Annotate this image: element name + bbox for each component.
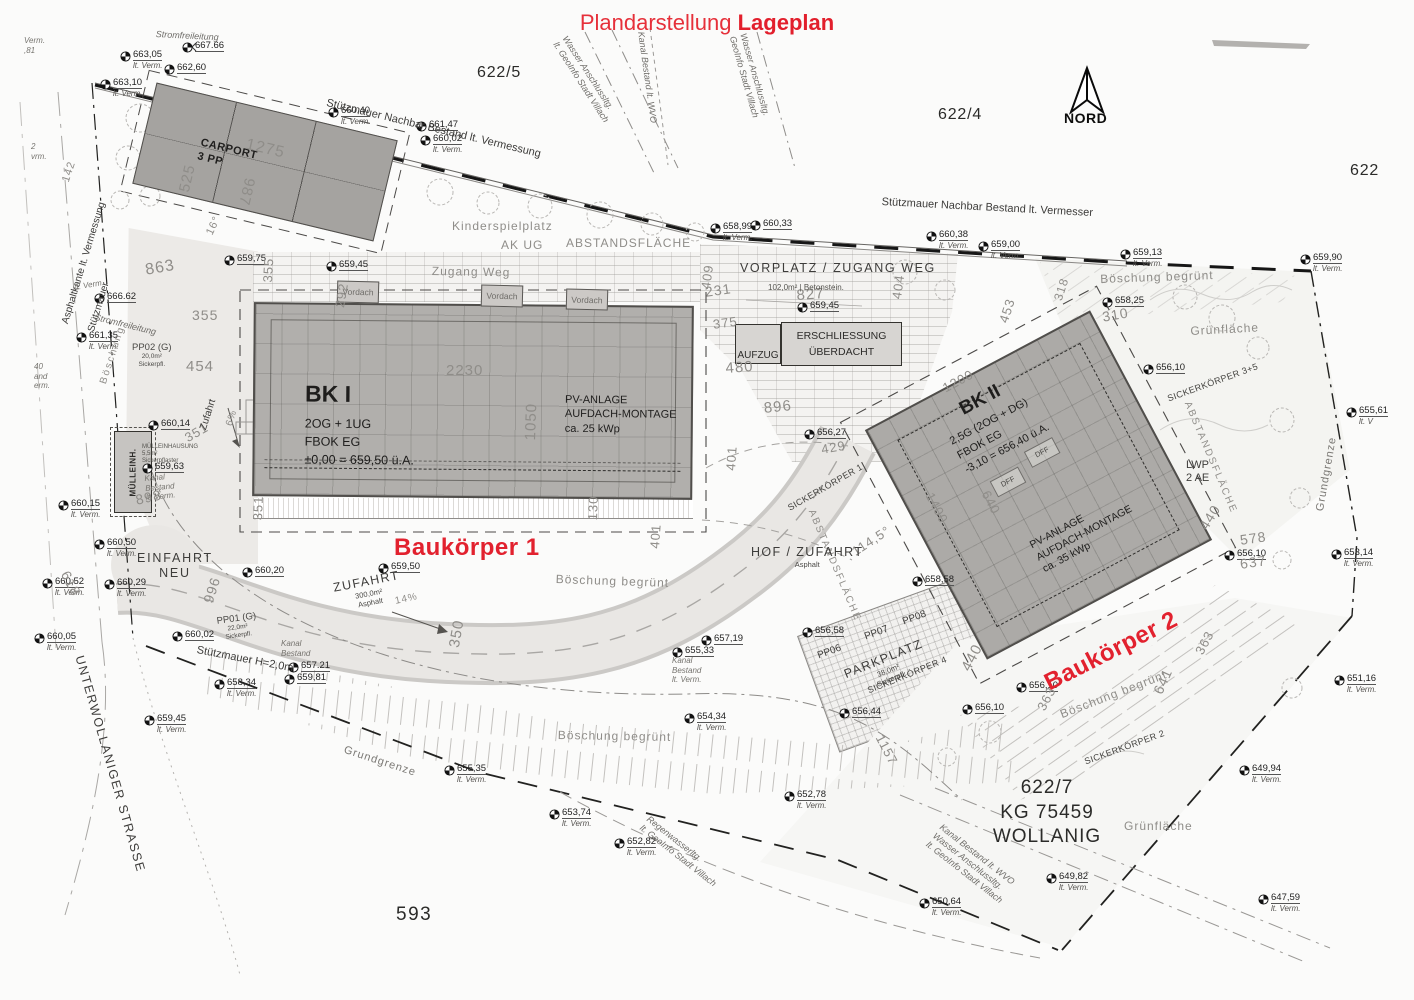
survey-source: lt. Verm.: [1252, 775, 1281, 785]
survey-marker-icon: [224, 255, 235, 266]
bk1-elevation: ±0,00 = 659,50 ü.A.: [304, 451, 414, 470]
survey-elevation: 653,14: [1344, 548, 1373, 559]
survey-marker-icon: [284, 674, 295, 685]
map-note-line: erm.: [34, 381, 50, 391]
map-note: HOF / ZUFAHRTAsphalt: [751, 545, 863, 569]
map-note: KanalBestandlt. Verm.: [672, 656, 701, 685]
survey-source: lt. Verm.: [627, 848, 656, 858]
parcel-622-5: 622/5: [477, 64, 521, 82]
survey-elevation: 660,20: [255, 566, 284, 577]
survey-source: lt. Verm.: [133, 61, 162, 71]
survey-marker-icon: [912, 576, 923, 587]
map-note: Grünfläche: [1124, 819, 1193, 833]
bk2-dff-1: DFF: [990, 467, 1027, 498]
parcel-kg: KG 75459: [972, 801, 1122, 826]
survey-marker-icon: [839, 708, 850, 719]
survey-marker-icon: [1258, 894, 1269, 905]
parcel-622-7: 622/7: [972, 776, 1122, 801]
vordach-box-3: Vordach: [566, 288, 609, 310]
survey-source: lt. Verm.: [1271, 904, 1300, 914]
dimension-label: 355: [192, 307, 218, 323]
survey-marker-icon: [919, 898, 930, 909]
survey-marker-icon: [750, 220, 761, 231]
map-note: PP01 (G)22,0m²Sickerpfl.: [216, 610, 259, 642]
survey-elevation: 660,50: [107, 538, 136, 549]
muelleinhausung-label: MÜLLEINH.: [129, 448, 138, 496]
survey-elevation: 666.62: [107, 292, 136, 303]
map-note-line: Zugang Weg: [432, 264, 511, 280]
survey-marker-icon: [1346, 407, 1357, 418]
map-note-line: Verm.: [24, 36, 45, 46]
survey-marker-icon: [710, 223, 721, 234]
map-note-line: Kinderspielplatz: [452, 219, 553, 233]
survey-elevation: 651,16: [1347, 674, 1376, 685]
survey-point: 654,34lt. Verm.: [684, 712, 726, 733]
survey-marker-icon: [144, 715, 155, 726]
parcel-622-7-block: 622/7 KG 75459 WOLLANIG: [972, 776, 1122, 850]
survey-elevation: 656,10: [1156, 363, 1185, 374]
survey-source: lt. Verm.: [107, 549, 136, 559]
map-note: Zugang Weg: [432, 264, 511, 280]
bk2-pv-note: PV-ANLAGE AUFDACH-MONTAGE ca. 35 kWp: [1028, 490, 1141, 576]
survey-elevation: 660,38: [939, 230, 968, 241]
survey-elevation: 659,45: [339, 260, 368, 271]
survey-point: 650,64lt. Verm.: [919, 897, 961, 918]
survey-elevation: 667.66: [195, 41, 224, 52]
survey-elevation: 660,15: [71, 499, 100, 510]
survey-elevation: 653,74: [562, 808, 591, 819]
parcel-622: 622: [1350, 162, 1379, 180]
survey-elevation: 658,34: [227, 678, 256, 689]
bk1-info: 2OG + 1UG FBOK EG ±0,00 = 659,50 ü.A.: [304, 415, 414, 470]
map-note-line: LWP: [1186, 459, 1209, 472]
survey-marker-icon: [58, 500, 69, 511]
survey-marker-icon: [214, 679, 225, 690]
survey-elevation: 663,10: [113, 78, 142, 89]
survey-point: 660,20: [242, 566, 284, 578]
map-note: Kinderspielplatz: [452, 219, 553, 233]
survey-elevation: 659,81: [297, 673, 326, 684]
survey-marker-icon: [326, 261, 337, 272]
plan-title: Plandarstellung Lageplan: [580, 10, 834, 36]
survey-marker-icon: [549, 809, 560, 820]
survey-elevation: 660,02: [185, 630, 214, 641]
site-plan: CARPORT 3 PP BK I 2OG + 1UG FBOK EG ±0,0…: [0, 0, 1414, 1000]
survey-marker-icon: [684, 713, 695, 724]
survey-elevation: 659,90: [1313, 253, 1342, 264]
survey-marker-icon: [802, 627, 813, 638]
survey-marker-icon: [1331, 549, 1342, 560]
map-note: Böschung begrünt: [558, 728, 672, 744]
map-note-line: Bestand: [281, 649, 310, 659]
map-note-line: 40: [34, 362, 50, 372]
survey-marker-icon: [242, 567, 253, 578]
survey-point: 660,38lt. Verm.: [926, 230, 968, 251]
survey-point: 660,33: [750, 219, 792, 231]
survey-marker-icon: [76, 332, 87, 343]
map-note-line: 2 AE: [1186, 472, 1209, 485]
survey-elevation: 649,82: [1059, 872, 1088, 883]
survey-marker-icon: [804, 429, 815, 440]
map-note: MÜLLEINHAUSUNG5,5m²Sickerpflaster: [142, 444, 198, 466]
survey-point: 659,00lt. Verm.: [978, 240, 1020, 261]
survey-elevation: 658,99: [723, 222, 752, 233]
map-note-line: NEU: [137, 566, 213, 581]
map-note-line: 2: [31, 142, 47, 152]
survey-source: lt. Verm.: [1059, 883, 1088, 893]
survey-marker-icon: [926, 231, 937, 242]
dimension-label: 401: [723, 445, 740, 471]
erschliessung-label-1: ERSCHLIESSUNG: [782, 329, 901, 345]
map-note-line: 102,0m² | Betonstein.: [768, 283, 844, 293]
survey-point: 647,59lt. Verm.: [1258, 893, 1300, 914]
survey-point: 660,29lt. Verm.: [104, 578, 146, 599]
survey-point: 660,15lt. Verm.: [58, 499, 100, 520]
parcel-593: 593: [396, 904, 432, 926]
map-note: 40anderm.: [34, 362, 50, 391]
survey-point: 658,34lt. Verm.: [214, 678, 256, 699]
survey-point: 656,10: [962, 703, 1004, 715]
map-note: PP02 (G)20,0m²Sickerpfl.: [132, 342, 172, 369]
survey-source: lt. Verm.: [1133, 259, 1162, 269]
survey-marker-icon: [978, 241, 989, 252]
survey-marker-icon: [1224, 550, 1235, 561]
survey-source: lt. Verm.: [939, 241, 968, 251]
survey-elevation: 658,58: [925, 575, 954, 586]
map-note-line: and: [34, 372, 50, 382]
map-note-line: Kanal: [281, 639, 310, 649]
survey-point: 659,13lt. Verm.: [1120, 248, 1162, 269]
survey-marker-icon: [1016, 682, 1027, 693]
survey-point: 655,61lt. V: [1346, 406, 1388, 427]
map-note: Verm.,81: [24, 36, 45, 55]
survey-point: 659,45: [326, 260, 368, 272]
survey-elevation: 659,45: [157, 714, 186, 725]
survey-source: lt. Verm.: [797, 801, 826, 811]
survey-marker-icon: [182, 42, 193, 53]
map-note-line: 5,5m²: [142, 451, 198, 458]
survey-point: 662,60: [164, 63, 206, 75]
map-note: AK UG: [501, 238, 543, 252]
survey-marker-icon: [784, 791, 795, 802]
dimension-label: 896: [763, 397, 793, 417]
bk1-building: BK I 2OG + 1UG FBOK EG ±0,00 = 659,50 ü.…: [252, 302, 694, 500]
survey-source: lt. V: [1359, 417, 1388, 427]
survey-elevation: 649,94: [1252, 764, 1281, 775]
map-note-line: Böschung begrünt: [558, 728, 672, 744]
map-note-line: PP02 (G): [132, 342, 172, 353]
survey-marker-icon: [42, 578, 53, 589]
dimension-label: 355: [260, 257, 276, 282]
survey-point: 655,35lt. Verm.: [444, 764, 486, 785]
survey-source: lt. Verm.: [71, 510, 100, 520]
map-note: KanalBestand: [281, 639, 310, 658]
survey-elevation: 656,10: [975, 703, 1004, 714]
legend-wedge: [1212, 40, 1310, 49]
survey-marker-icon: [1239, 765, 1250, 776]
survey-source: lt. Verm.: [1347, 685, 1376, 695]
survey-marker-icon: [614, 838, 625, 849]
survey-elevation: 655,61: [1359, 406, 1388, 417]
survey-marker-icon: [962, 704, 973, 715]
survey-source: lt. Verm.: [1344, 559, 1373, 569]
map-note-line: lt. Verm.: [672, 675, 701, 685]
survey-point: 659,75: [224, 254, 266, 266]
survey-point: 658,99lt. Verm.: [710, 222, 752, 243]
map-note-line: Bestand: [672, 666, 701, 676]
survey-point: 652,78lt. Verm.: [784, 790, 826, 811]
survey-elevation: 650,64: [932, 897, 961, 908]
dimension-label: 1050: [522, 403, 540, 441]
survey-elevation: 660,05: [47, 632, 76, 643]
map-note: EINFAHRTNEU: [137, 551, 213, 581]
survey-source: lt. Verm.: [227, 689, 256, 699]
map-note-line: VORPLATZ / ZUGANG WEG: [740, 261, 936, 276]
map-note: ABSTANDSFLÄCHE: [566, 236, 691, 250]
survey-point: 653,14lt. Verm.: [1331, 548, 1373, 569]
survey-elevation: 659,13: [1133, 248, 1162, 259]
map-note: KanalBestandlt. Verm.: [144, 471, 176, 502]
map-note: LWP2 AE: [1186, 459, 1209, 485]
survey-elevation: 657.21: [301, 661, 330, 672]
slope-arrowhead-6: [232, 439, 240, 448]
survey-elevation: 656,58: [815, 626, 844, 637]
plan-title-bold: Lageplan: [738, 10, 835, 35]
bk1-pv-2: AUFDACH-MONTAGE: [565, 407, 677, 422]
survey-marker-icon: [1120, 249, 1131, 260]
survey-point: 660,05lt. Verm.: [34, 632, 76, 653]
map-note-line: ABSTANDSFLÄCHE: [566, 236, 691, 250]
survey-point: 656,58: [802, 626, 844, 638]
survey-source: lt. Verm.: [433, 145, 462, 155]
map-note-line: HOF / ZUFAHRT: [751, 545, 863, 560]
survey-elevation: 655,35: [457, 764, 486, 775]
parcel-622-4: 622/4: [938, 106, 982, 124]
bk1-name: BK I: [305, 383, 351, 406]
survey-source: lt. Verm.: [697, 723, 726, 733]
erschliessung-label-2: ÜBERDACHT: [782, 345, 901, 361]
map-note-line: Sickerpfl.: [132, 361, 172, 369]
survey-marker-icon: [1334, 675, 1345, 686]
map-note-line: Kanal: [672, 656, 701, 666]
map-note-line: MÜLLEINHAUSUNG: [142, 444, 198, 451]
survey-elevation: 654,34: [697, 712, 726, 723]
survey-marker-icon: [104, 579, 115, 590]
survey-source: lt. Verm.: [562, 819, 591, 829]
dimension-label: 130: [585, 495, 601, 520]
survey-marker-icon: [94, 539, 105, 550]
baukoerper-1-label: Baukörper 1: [394, 534, 540, 562]
survey-source: lt. Verm.: [113, 89, 142, 99]
survey-marker-icon: [444, 765, 455, 776]
survey-point: 653,74lt. Verm.: [549, 808, 591, 829]
map-note-line: Grünfläche: [1124, 819, 1193, 833]
bk1-fbok: FBOK EG: [305, 433, 415, 452]
survey-point: 649,82lt. Verm.: [1046, 872, 1088, 893]
map-note-line: Asphalt: [751, 560, 863, 569]
survey-point: 660,14: [148, 419, 190, 431]
survey-marker-icon: [148, 420, 159, 431]
map-note-line: Sickerpflaster: [142, 458, 198, 465]
survey-point: 660,50lt. Verm.: [94, 538, 136, 559]
plan-title-prefix: Plandarstellung: [580, 10, 732, 35]
dimension-label: 2230: [446, 362, 483, 379]
survey-point: 659,45lt. Verm.: [144, 714, 186, 735]
map-note-line: vrm.: [31, 152, 47, 162]
survey-source: lt. Verm.: [457, 775, 486, 785]
map-note: VORPLATZ / ZUGANG WEG: [740, 261, 936, 276]
vordach-box-2: Vordach: [481, 284, 524, 307]
survey-marker-icon: [172, 631, 183, 642]
survey-marker-icon: [1143, 364, 1154, 375]
north-label: NORD: [1064, 110, 1107, 126]
survey-elevation: 657,19: [714, 634, 743, 645]
survey-point: 656,44: [839, 707, 881, 719]
parcel-name: WOLLANIG: [972, 825, 1122, 850]
survey-marker-icon: [1046, 873, 1057, 884]
bk1-floors: 2OG + 1UG: [305, 415, 415, 434]
survey-point: 651,16lt. Verm.: [1334, 674, 1376, 695]
survey-marker-icon: [120, 51, 131, 62]
dimension-label: 351: [250, 495, 266, 520]
map-note-line: ,81: [24, 46, 45, 56]
dimension-label: 454: [186, 358, 214, 375]
map-note: 2vrm.: [31, 142, 47, 161]
bk1-pv-3: ca. 25 kWp: [565, 421, 677, 436]
survey-marker-icon: [164, 64, 175, 75]
survey-point: 658,58: [912, 575, 954, 587]
survey-point: 656,10: [1143, 363, 1185, 375]
survey-source: lt. Verm.: [47, 643, 76, 653]
survey-point: 649,94lt. Verm.: [1239, 764, 1281, 785]
survey-marker-icon: [1300, 254, 1311, 265]
survey-marker-icon: [100, 79, 111, 90]
dimension-label: 401: [647, 523, 664, 549]
survey-elevation: 663,05: [133, 50, 162, 61]
survey-source: lt. Verm.: [157, 725, 186, 735]
erschliessung-box: ERSCHLIESSUNG ÜBERDACHT: [781, 322, 902, 366]
map-note-line: AK UG: [501, 238, 543, 252]
survey-source: lt. Verm.: [723, 233, 752, 243]
survey-elevation: 652,78: [797, 790, 826, 801]
survey-elevation: 662,60: [177, 63, 206, 74]
survey-source: lt. Verm.: [991, 251, 1020, 261]
map-note: 102,0m² | Betonstein.: [768, 283, 844, 293]
survey-source: lt. Verm.: [932, 908, 961, 918]
survey-point: 663,10lt. Verm.: [100, 78, 142, 99]
map-note-line: 20,0m²: [132, 353, 172, 361]
survey-marker-icon: [420, 135, 431, 146]
survey-source: lt. Verm.: [1313, 264, 1342, 274]
survey-elevation: 656,44: [852, 707, 881, 718]
survey-point: 663,05lt. Verm.: [120, 50, 162, 71]
survey-point: 659,90lt. Verm.: [1300, 253, 1342, 274]
survey-point: 660,02: [172, 630, 214, 642]
survey-elevation: 659,00: [991, 240, 1020, 251]
map-note-line: EINFAHRT: [137, 551, 213, 566]
bk1-pv-1: PV-ANLAGE: [565, 393, 677, 408]
bk1-pv-note: PV-ANLAGE AUFDACH-MONTAGE ca. 25 kWp: [565, 393, 677, 437]
dimension-label: 480: [725, 358, 754, 377]
survey-source: lt. Verm.: [117, 589, 146, 599]
survey-elevation: 660,33: [763, 219, 792, 230]
survey-elevation: 647,59: [1271, 893, 1300, 904]
survey-marker-icon: [34, 633, 45, 644]
